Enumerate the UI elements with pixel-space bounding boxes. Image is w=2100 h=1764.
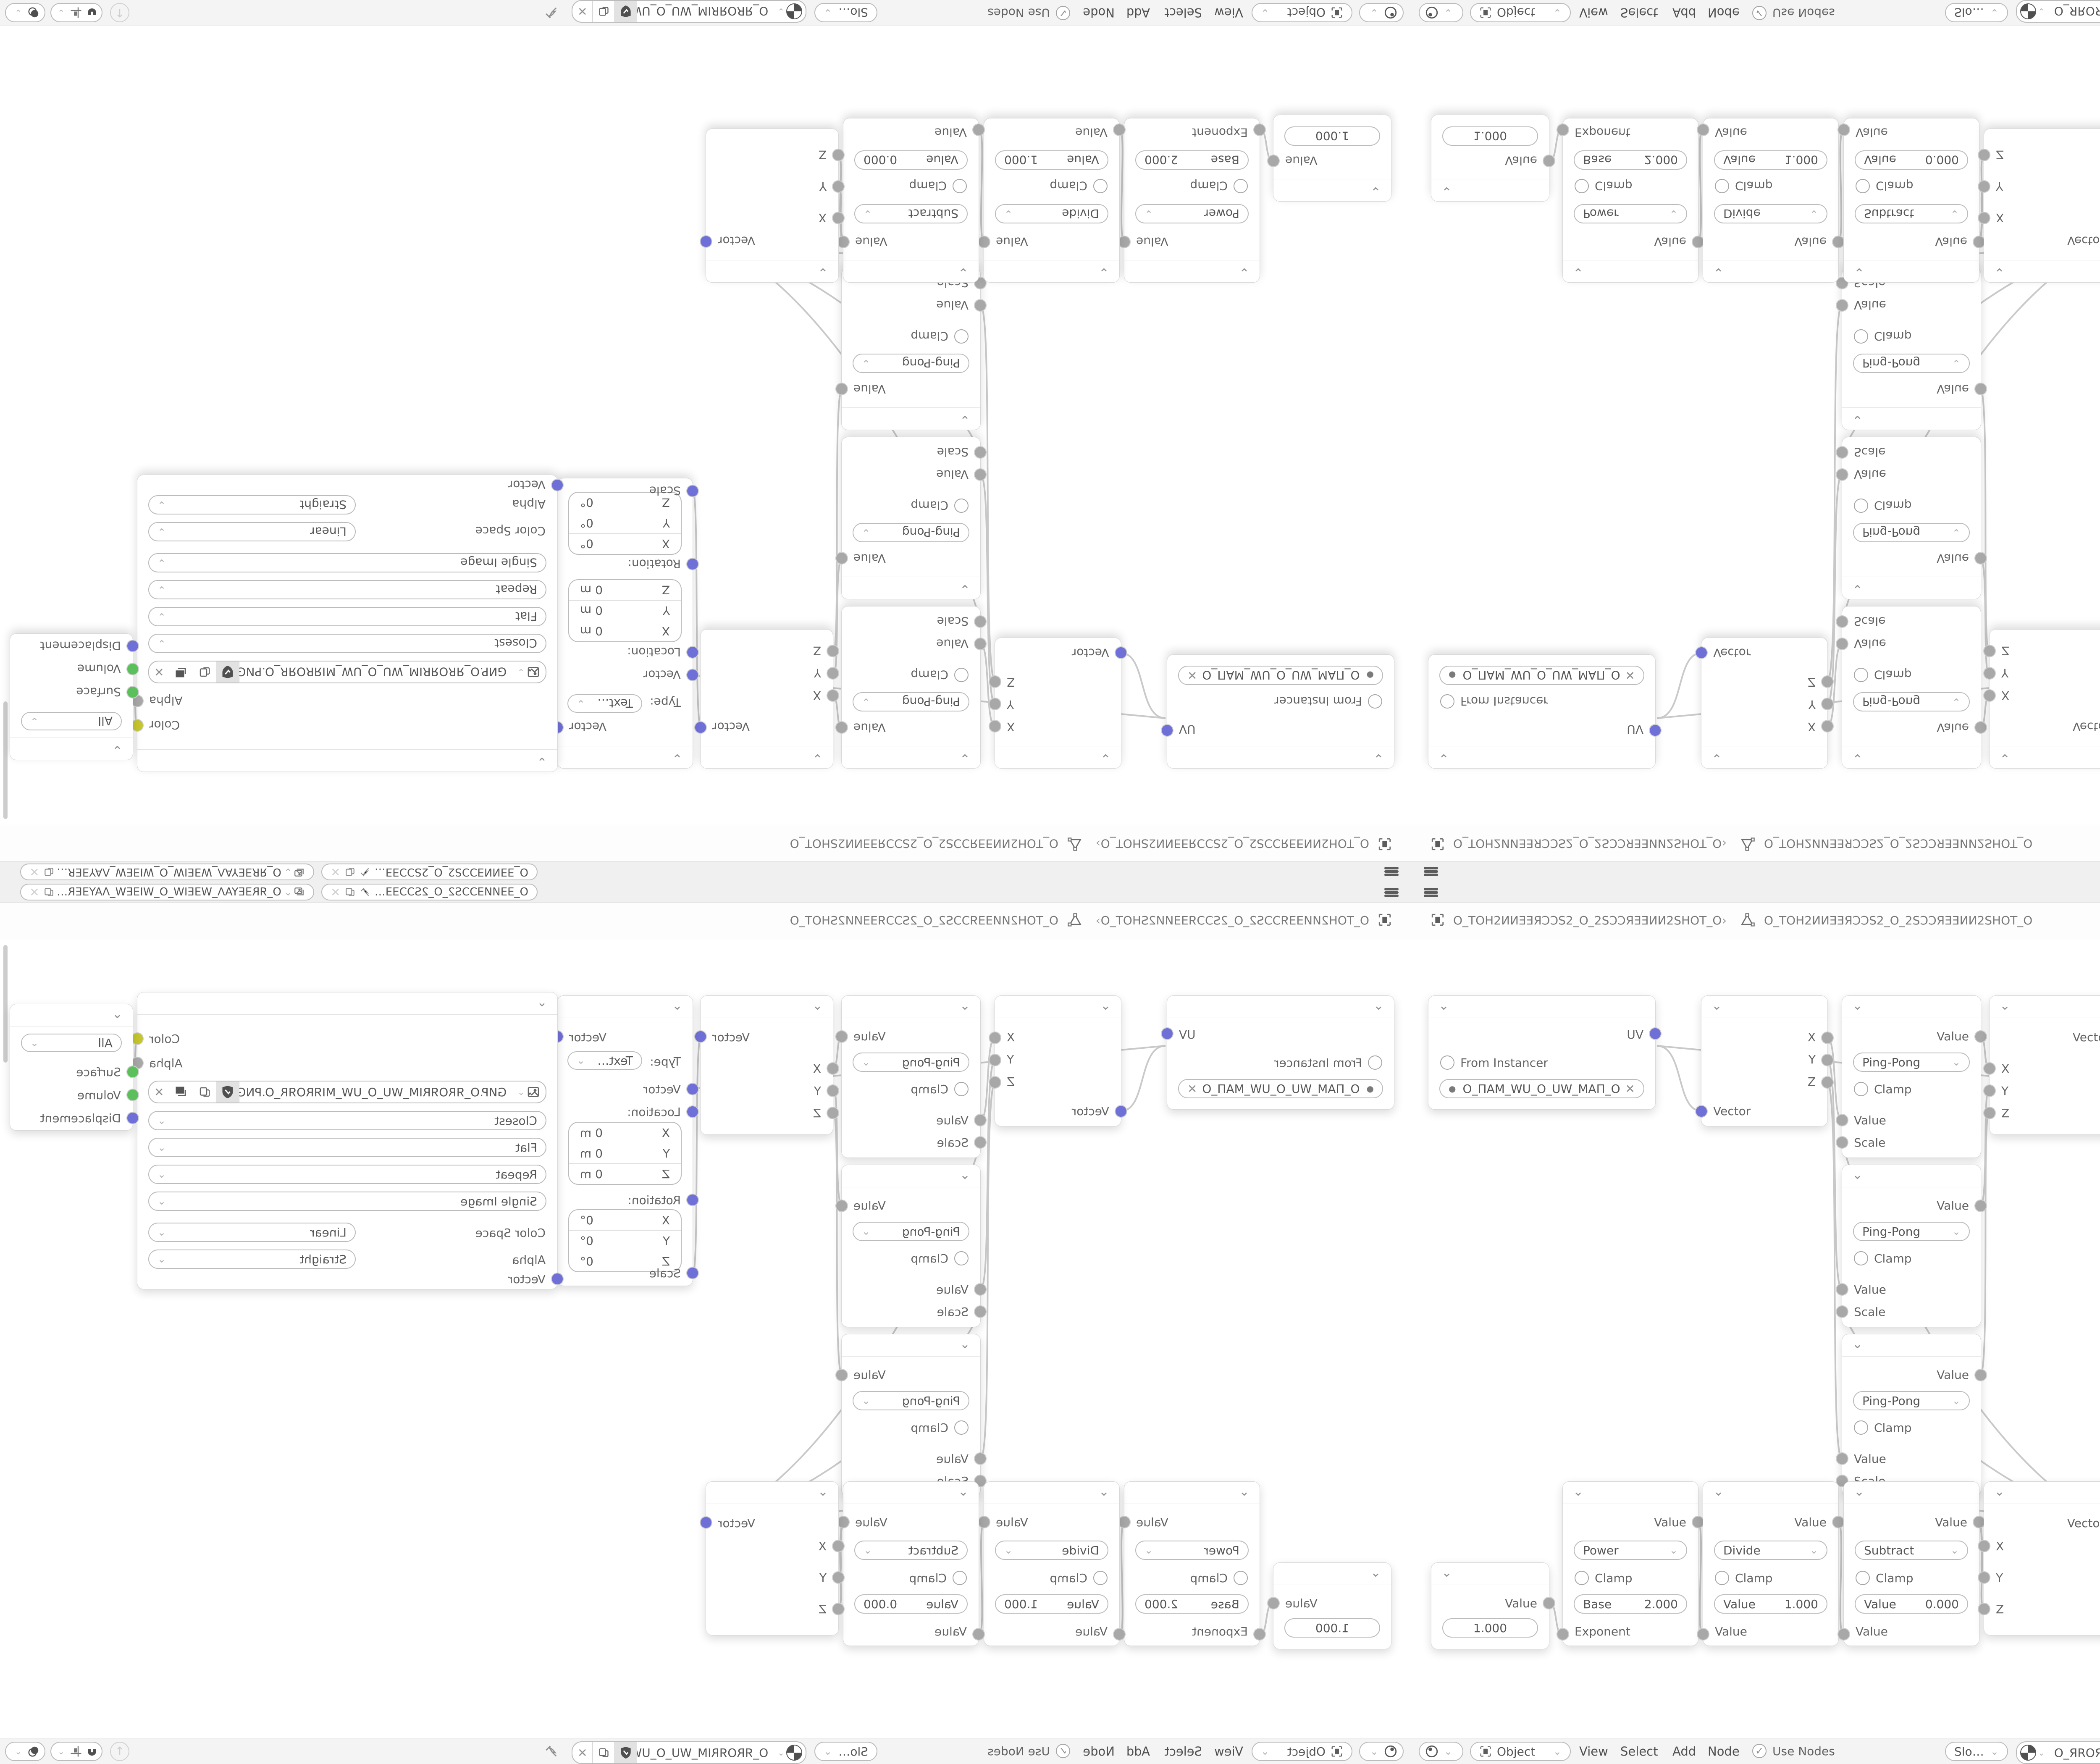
x-output-socket[interactable] <box>990 1032 1000 1043</box>
operation-dropdown[interactable]: Subtract⌄ <box>1855 1541 1968 1560</box>
node-combine-xyz-2[interactable]: ⌄ Vector X Y Z <box>1984 1481 2100 1635</box>
vector-input-socket[interactable] <box>1696 1106 1707 1117</box>
value-input-socket[interactable] <box>1254 1629 1265 1640</box>
value-output-socket[interactable] <box>836 1370 847 1381</box>
x-input-socket[interactable] <box>1979 1541 1990 1551</box>
value-output-socket[interactable] <box>1119 236 1130 247</box>
uv-output-socket[interactable] <box>1650 725 1661 736</box>
clamp-checkbox[interactable]: Clamp <box>1575 1571 1633 1585</box>
clamp-checkbox[interactable]: Clamp <box>911 1082 969 1096</box>
node-combine-xyz[interactable]: ⌄ Vector X Y Z <box>1989 629 2100 769</box>
rotation-fields[interactable]: X0° Y0° Z0° <box>568 492 682 555</box>
node-math-pingpong-1[interactable]: ⌄ Value Ping-Pong⌄ Clamp Value Scale <box>1842 995 1981 1158</box>
breadcrumb-mesh[interactable]: O_TOH2ИИƎƎЯƆƆS2_O_2SƆƆЯƎƎИИ2SHOT_O <box>1764 913 2032 927</box>
collapse-chevron-icon[interactable]: ⌄ <box>1711 998 1722 1013</box>
collapse-chevron-icon[interactable]: ⌄ <box>1852 998 1863 1013</box>
clamp-checkbox[interactable]: Clamp <box>1575 179 1633 193</box>
scene-selector[interactable]: O_ƎƎИИƎƆƆS2_O_2SƆƆƎƎИ... ✕ <box>321 864 538 880</box>
source-dropdown[interactable]: Single Image⌄ <box>148 1192 546 1211</box>
clamp-checkbox[interactable]: Clamp <box>1854 1082 1912 1096</box>
operand-field[interactable]: Base 2.000 <box>1135 1594 1249 1614</box>
y-input-socket[interactable] <box>1984 1085 1995 1096</box>
operation-dropdown[interactable]: Ping-Pong⌄ <box>1853 692 1970 711</box>
scene-selector[interactable]: O_ƎƎИИƎƆƆS2_O_2SƆƆƎƎИ... ✕ <box>321 884 538 900</box>
operand-field[interactable]: Value 1.000 <box>1714 150 1827 170</box>
node-math-pingpong-1[interactable]: ⌄ Value Ping-Pong⌄ Clamp Value Scale <box>841 606 981 769</box>
operation-dropdown[interactable]: Subtract⌄ <box>1855 204 1968 223</box>
node-math-divide[interactable]: ⌄ Value Divide⌄ Clamp Value 1.000 Value <box>1703 118 1839 283</box>
value-output-socket[interactable] <box>979 1517 990 1528</box>
collapse-chevron-icon[interactable]: ⌄ <box>112 743 123 757</box>
y-input-socket[interactable] <box>833 1572 844 1583</box>
value-output-socket[interactable] <box>1975 383 1986 394</box>
clear-icon[interactable]: ✕ <box>1625 1082 1635 1096</box>
operation-dropdown[interactable]: Ping-Pong⌄ <box>1853 1053 1970 1072</box>
node-value[interactable]: ⌄ Value 1.000 <box>1431 1562 1549 1649</box>
material-sphere-icon[interactable]: ⌄ <box>2017 1742 2048 1763</box>
node-combine-xyz[interactable]: ⌄ Vector X Y Z <box>700 629 833 769</box>
value-output-socket[interactable] <box>836 383 847 394</box>
source-dropdown[interactable]: Single Image⌄ <box>148 553 546 572</box>
collapse-chevron-icon[interactable]: ⌄ <box>672 998 682 1013</box>
value-output-socket[interactable] <box>1975 1031 1986 1042</box>
uv-output-socket[interactable] <box>1162 725 1173 736</box>
menu-hamburger-icon[interactable] <box>1424 866 1438 877</box>
close-icon[interactable]: ✕ <box>29 865 39 879</box>
collapse-chevron-icon[interactable]: ⌄ <box>1994 1484 2005 1499</box>
y-input-socket[interactable] <box>833 181 844 192</box>
collapse-chevron-icon[interactable]: ⌄ <box>812 998 823 1013</box>
z-output-socket[interactable] <box>1822 1077 1833 1088</box>
menu-view[interactable]: View <box>1579 5 1608 20</box>
value-output-socket[interactable] <box>838 236 849 247</box>
shading-context-dropdown[interactable]: Object ⌄ <box>1470 1742 1571 1761</box>
collapse-chevron-icon[interactable]: ⌄ <box>1441 1565 1452 1580</box>
menu-add[interactable]: Add <box>1672 5 1696 20</box>
volume-input-socket[interactable] <box>127 664 138 675</box>
clamp-checkbox[interactable]: Clamp <box>1854 1251 1912 1265</box>
menu-hamburger-icon[interactable] <box>1384 887 1399 898</box>
vector-output-socket[interactable] <box>695 1031 706 1042</box>
collapse-chevron-icon[interactable]: ⌄ <box>1099 265 1109 280</box>
menu-view[interactable]: View <box>1214 1744 1243 1759</box>
node-math-power[interactable]: ⌄ Value Power⌄ Clamp Base 2.000 Exponent <box>1562 118 1698 283</box>
operand-field[interactable]: Base 2.000 <box>1574 150 1687 170</box>
surface-input-socket[interactable] <box>127 1066 138 1077</box>
collapse-chevron-icon[interactable]: ⌄ <box>112 1007 123 1021</box>
operation-dropdown[interactable]: Ping-Pong⌄ <box>1853 1391 1970 1410</box>
value-output-socket[interactable] <box>1975 1200 1986 1211</box>
surface-input-socket[interactable] <box>127 687 138 698</box>
shading-context-dropdown[interactable]: Object ⌄ <box>1252 3 1352 22</box>
from-instancer-checkbox[interactable]: From Instancer <box>1274 1055 1382 1070</box>
image-browse-icon[interactable]: ⌄ <box>512 1081 546 1102</box>
value-output-socket[interactable] <box>1268 1598 1279 1609</box>
operation-dropdown[interactable]: Power⌄ <box>1135 204 1249 223</box>
uv-output-socket[interactable] <box>1650 1028 1661 1039</box>
value-output-socket[interactable] <box>979 236 990 247</box>
value-input-socket[interactable] <box>1838 1629 1849 1640</box>
unlink-icon[interactable]: ✕ <box>572 1 593 22</box>
menu-hamburger-icon[interactable] <box>1424 887 1438 898</box>
scale-input-socket[interactable] <box>975 447 986 458</box>
value-output-socket[interactable] <box>836 1031 847 1042</box>
interpolation-dropdown[interactable]: Closest⌄ <box>148 634 546 653</box>
collapse-chevron-icon[interactable]: ⌄ <box>812 751 823 766</box>
collapse-chevron-icon[interactable]: ⌄ <box>1438 998 1449 1013</box>
clamp-checkbox[interactable]: Clamp <box>911 499 969 513</box>
z-input-socket[interactable] <box>827 1108 838 1118</box>
value-input-socket[interactable] <box>1837 469 1848 480</box>
vector-input-socket[interactable] <box>687 669 698 680</box>
node-separate-xyz[interactable]: ⌄ X Y Z Vector <box>1701 638 1828 769</box>
operation-dropdown[interactable]: Ping-Pong⌄ <box>853 1222 969 1241</box>
operand-field[interactable]: Value 1.000 <box>1714 1594 1827 1614</box>
operand-field[interactable]: Value 0.000 <box>1855 150 1968 170</box>
pin-icon[interactable] <box>360 866 370 877</box>
node-math-divide[interactable]: ⌄ Value Divide⌄ Clamp Value 1.000 Value <box>1703 1481 1839 1646</box>
material-sphere-icon[interactable]: ⌄ <box>774 1742 806 1763</box>
x-input-socket[interactable] <box>1979 213 1990 223</box>
collapse-chevron-icon[interactable]: ⌄ <box>818 1484 828 1499</box>
clamp-checkbox[interactable]: Clamp <box>1715 179 1773 193</box>
value-output-socket[interactable] <box>1693 236 1704 247</box>
vector-input-socket[interactable] <box>1116 1106 1126 1117</box>
value-output-socket[interactable] <box>1833 236 1844 247</box>
clear-icon[interactable]: ✕ <box>1187 1082 1197 1096</box>
copy-icon[interactable] <box>193 661 216 682</box>
viewlayer-selector[interactable]: ⌄ O_ЯRƎEYAΛ_WƎEIW_O_WIƎEW_ΛAYƎERЯ_O ✕ <box>20 884 314 900</box>
value-output-socket[interactable] <box>1975 1370 1986 1381</box>
clamp-checkbox[interactable]: Clamp <box>1854 329 1912 344</box>
node-math-divide[interactable]: ⌄ Value Divide⌄ Clamp Value 1.000 Value <box>984 1481 1120 1646</box>
location-fields[interactable]: X0 m Y0 m Z0 m <box>568 579 682 642</box>
collapse-chevron-icon[interactable]: ⌄ <box>1852 1337 1863 1352</box>
node-mapping[interactable]: ⌄ Vector Type: Texture⌄ Vector Location:… <box>557 995 693 1286</box>
value-output-socket[interactable] <box>836 722 847 733</box>
color-space-dropdown[interactable]: Linear⌄ <box>148 1223 356 1242</box>
breadcrumb-mesh[interactable]: O_TOH2ИИƎƎЯƆƆS2_O_2SƆƆЯƎƎИИ2SHOT_O <box>1764 837 2032 850</box>
rotation-fields[interactable]: X0° Y0° Z0° <box>568 1209 682 1272</box>
node-material-output[interactable]: ⌄ All⌄ Surface Volume Displacement <box>10 1004 133 1131</box>
collapse-chevron-icon[interactable]: ⌄ <box>1711 751 1722 766</box>
editor-type-button[interactable]: ⌄ <box>1419 3 1463 22</box>
scale-input-socket[interactable] <box>1837 1306 1848 1317</box>
value-output-socket[interactable] <box>1268 155 1279 166</box>
y-output-socket[interactable] <box>1822 1055 1833 1066</box>
value-input-socket[interactable] <box>975 638 986 649</box>
editor-type-button[interactable]: ⌄ <box>1359 3 1404 22</box>
scale-input-socket[interactable] <box>975 1306 986 1317</box>
clamp-checkbox[interactable]: Clamp <box>1190 1571 1248 1585</box>
collapse-chevron-icon[interactable]: ⌄ <box>1852 412 1863 427</box>
value-output-socket[interactable] <box>1833 1517 1844 1528</box>
viewlayer-selector[interactable]: ⌄ O_ЯRƎEYAΛ_WƎEIW_O_WIƎEW_ΛAYƎERЯ_O ✕ <box>20 864 314 880</box>
value-output-socket[interactable] <box>1543 1598 1554 1609</box>
node-uv-map[interactable]: ⌄ UV From Instancer ● O_ПAM_WU_O_UW_MAП_… <box>1428 995 1656 1110</box>
menu-hamburger-icon[interactable] <box>1384 866 1399 877</box>
use-nodes-checkbox[interactable]: ✓Use Nodes <box>1752 1744 1835 1758</box>
value-input-socket[interactable] <box>1837 1284 1848 1295</box>
collapse-chevron-icon[interactable]: ⌄ <box>1713 1484 1724 1499</box>
node-math-subtract[interactable]: ⌄ Value Subtract⌄ Clamp Value 0.000 Valu… <box>843 118 979 283</box>
node-math-power[interactable]: ⌄ Value Power⌄ Clamp Base 2.000 Exponent <box>1124 1481 1260 1646</box>
node-uv-map[interactable]: ⌄ UV From Instancer ● O_ПAM_WU_O_UW_MAП_… <box>1167 654 1394 769</box>
value-input-socket[interactable] <box>1837 1115 1848 1126</box>
menu-view[interactable]: View <box>1214 5 1243 20</box>
node-separate-xyz[interactable]: ⌄ X Y Z Vector <box>995 638 1121 769</box>
clamp-checkbox[interactable]: Clamp <box>1050 179 1108 193</box>
y-input-socket[interactable] <box>1979 1572 1990 1583</box>
value-output-socket[interactable] <box>1975 722 1986 733</box>
gpu-compile-button[interactable]: ↑ <box>110 3 129 22</box>
y-input-socket[interactable] <box>1984 668 1995 679</box>
value-output-socket[interactable] <box>1119 1517 1130 1528</box>
menu-node[interactable]: Node <box>1083 1744 1115 1759</box>
value-input-socket[interactable] <box>975 1453 986 1464</box>
node-uv-map[interactable]: ⌄ UV From Instancer ● O_ПAM_WU_O_UW_MAП_… <box>1428 654 1656 769</box>
z-input-socket[interactable] <box>833 1604 844 1614</box>
value-output-socket[interactable] <box>1974 1517 1984 1528</box>
target-dropdown[interactable]: All⌄ <box>21 712 122 730</box>
scale-input-socket[interactable] <box>1837 616 1848 627</box>
operation-dropdown[interactable]: Divide⌄ <box>1714 204 1827 223</box>
node-separate-xyz[interactable]: ⌄ X Y Z Vector <box>1701 995 1828 1126</box>
node-value[interactable]: ⌄ Value 1.000 <box>1273 115 1391 202</box>
node-math-pingpong-1[interactable]: ⌄ Value Ping-Pong⌄ Clamp Value Scale <box>841 995 981 1158</box>
operation-dropdown[interactable]: Power⌄ <box>1574 204 1687 223</box>
node-math-pingpong-3[interactable]: ⌄ Value Ping-Pong⌄ Clamp Value Scale <box>841 268 981 430</box>
clamp-checkbox[interactable]: Clamp <box>1856 1571 1914 1585</box>
collapse-chevron-icon[interactable]: ⌄ <box>1438 751 1449 766</box>
node-image-texture[interactable]: ⌄ Color Alpha ⌄ GИP.O_ЯROЯRIM_WU_O_UW_MI… <box>137 475 558 772</box>
collapse-chevron-icon[interactable]: ⌄ <box>1441 184 1452 199</box>
fake-user-shield-icon[interactable] <box>216 661 239 682</box>
use-nodes-checkbox[interactable]: ✓Use Nodes <box>1752 6 1835 20</box>
x-output-socket[interactable] <box>1822 721 1833 732</box>
value-output-socket[interactable] <box>836 1200 847 1211</box>
operation-dropdown[interactable]: Ping-Pong⌄ <box>1853 354 1970 373</box>
clamp-checkbox[interactable]: Clamp <box>1190 179 1248 193</box>
z-input-socket[interactable] <box>1984 646 1995 656</box>
operation-dropdown[interactable]: Ping-Pong⌄ <box>853 1391 969 1410</box>
color-space-dropdown[interactable]: Linear⌄ <box>148 522 356 541</box>
collapse-chevron-icon[interactable]: ⌄ <box>1854 265 1864 280</box>
clamp-checkbox[interactable]: Clamp <box>1715 1571 1773 1585</box>
operation-dropdown[interactable]: Power⌄ <box>1574 1541 1687 1560</box>
menu-select[interactable]: Select <box>1620 5 1658 20</box>
images-stack-icon[interactable] <box>169 1081 193 1102</box>
value-input-socket[interactable] <box>1837 1453 1848 1464</box>
node-math-divide[interactable]: ⌄ Value Divide⌄ Clamp Value 1.000 Value <box>984 118 1120 283</box>
operation-dropdown[interactable]: Ping-Pong⌄ <box>853 354 969 373</box>
close-icon[interactable]: ✕ <box>331 885 340 899</box>
x-output-socket[interactable] <box>1822 1032 1833 1043</box>
value-input-socket[interactable] <box>1254 124 1265 135</box>
location-input-socket[interactable] <box>687 1106 698 1117</box>
y-output-socket[interactable] <box>990 698 1000 709</box>
operation-dropdown[interactable]: Ping-Pong⌄ <box>853 523 969 542</box>
operation-dropdown[interactable]: Ping-Pong⌄ <box>853 692 969 711</box>
node-math-power[interactable]: ⌄ Value Power⌄ Clamp Base 2.000 Exponent <box>1124 118 1260 283</box>
clamp-checkbox[interactable]: Clamp <box>1854 499 1912 513</box>
x-output-socket[interactable] <box>990 721 1000 732</box>
image-browse-icon[interactable]: ⌄ <box>512 661 546 682</box>
node-mapping[interactable]: ⌄ Vector Type: Texture⌄ Vector Location:… <box>557 478 693 769</box>
slot-dropdown[interactable]: Slot 1⌄ <box>814 3 877 22</box>
value-input-socket[interactable] <box>975 1115 986 1126</box>
images-stack-icon[interactable] <box>169 661 193 682</box>
node-math-pingpong-3[interactable]: ⌄ Value Ping-Pong⌄ Clamp Value Scale <box>1842 268 1981 430</box>
scale-input-socket[interactable] <box>1837 1137 1848 1148</box>
z-input-socket[interactable] <box>827 646 838 656</box>
node-math-pingpong-2[interactable]: ⌄ Value Ping-Pong⌄ Clamp Value Scale <box>841 437 981 599</box>
uv-map-selector[interactable]: ● O_ПAM_WU_O_UW_MAП_O ✕ <box>1178 666 1383 685</box>
clamp-checkbox[interactable]: Clamp <box>911 329 969 344</box>
value-input-socket[interactable] <box>1557 1629 1568 1640</box>
value-output-socket[interactable] <box>1974 236 1984 247</box>
collapse-chevron-icon[interactable]: ⌄ <box>1852 751 1863 766</box>
node-math-pingpong-3[interactable]: ⌄ Value Ping-Pong⌄ Clamp Value Scale <box>1842 1334 1981 1496</box>
z-input-socket[interactable] <box>1979 150 1990 160</box>
fake-user-shield-icon[interactable] <box>615 1 637 22</box>
y-input-socket[interactable] <box>1979 181 1990 192</box>
collapse-chevron-icon[interactable]: ⌄ <box>1239 265 1249 280</box>
z-output-socket[interactable] <box>1822 676 1833 687</box>
collapse-chevron-icon[interactable]: ⌄ <box>960 998 970 1013</box>
mapping-type-dropdown[interactable]: Texture⌄ <box>567 1051 642 1070</box>
node-combine-xyz-2[interactable]: ⌄ Vector X Y Z <box>706 1481 839 1635</box>
volume-input-socket[interactable] <box>127 1089 138 1100</box>
operand-field[interactable]: Value 1.000 <box>995 1594 1108 1614</box>
collapse-chevron-icon[interactable]: ⌄ <box>1713 265 1724 280</box>
scale-input-socket[interactable] <box>1837 447 1848 458</box>
operand-field[interactable]: Value 1.000 <box>995 150 1108 170</box>
use-nodes-checkbox[interactable]: ✓Use Nodes <box>987 1744 1070 1758</box>
menu-select[interactable]: Select <box>1620 1744 1658 1759</box>
collapse-chevron-icon[interactable]: ⌄ <box>958 1484 969 1499</box>
y-output-socket[interactable] <box>1822 698 1833 709</box>
breadcrumb-object[interactable]: O_TOH2ИИƎƎЯƆƆS2_O_2SƆƆЯƎƎИИ2SHOT_O <box>1101 913 1369 927</box>
value-input-socket[interactable] <box>975 469 986 480</box>
value-field[interactable]: 1.000 <box>1442 126 1538 146</box>
collapse-chevron-icon[interactable]: ⌄ <box>537 995 547 1010</box>
menu-node[interactable]: Node <box>1083 5 1115 20</box>
slot-dropdown[interactable]: Slot 1⌄ <box>1945 1742 2008 1761</box>
projection-dropdown[interactable]: Flat⌄ <box>148 607 546 626</box>
collapse-chevron-icon[interactable]: ⌄ <box>1573 265 1583 280</box>
from-instancer-checkbox[interactable]: From Instancer <box>1440 1055 1548 1070</box>
uv-map-selector[interactable]: ● O_ПAM_WU_O_UW_MAП_O ✕ <box>1439 666 1644 685</box>
value-field[interactable]: 1.000 <box>1284 126 1380 146</box>
clamp-checkbox[interactable]: Clamp <box>911 668 969 682</box>
uv-map-selector[interactable]: ● O_ПAM_WU_O_UW_MAП_O ✕ <box>1439 1079 1644 1098</box>
node-math-pingpong-2[interactable]: ⌄ Value Ping-Pong⌄ Clamp Value Scale <box>841 1165 981 1327</box>
fake-user-shield-icon[interactable] <box>615 1742 637 1763</box>
breadcrumb-object[interactable]: O_TOH2ИИƎƎЯƆƆS2_O_2SƆƆЯƎƎИИ2SHOT_O <box>1101 837 1369 850</box>
vector-output-socket[interactable] <box>701 236 711 247</box>
uv-map-selector[interactable]: ● O_ПAM_WU_O_UW_MAП_O ✕ <box>1178 1079 1383 1098</box>
z-output-socket[interactable] <box>990 676 1000 687</box>
extension-dropdown[interactable]: Repeat⌄ <box>148 1165 546 1184</box>
material-sphere-icon[interactable]: ⌄ <box>2017 1 2048 22</box>
clamp-checkbox[interactable]: Clamp <box>1854 1420 1912 1435</box>
node-combine-xyz-2[interactable]: ⌄ Vector X Y Z <box>1984 129 2100 283</box>
value-output-socket[interactable] <box>836 553 847 564</box>
image-datablock[interactable]: ⌄ GИP.O_ЯROЯRIM_WU_O_UW_MIЯROЯR_O.PNG ✕ <box>148 661 546 683</box>
collapse-chevron-icon[interactable]: ⌄ <box>537 754 547 769</box>
color-output-socket[interactable] <box>132 720 143 731</box>
breadcrumb-mesh[interactable]: O_TOH2ИИƎƎЯƆƆS2_O_2SƆƆЯƎƎИИ2SHOT_O <box>790 837 1058 850</box>
slot-dropdown[interactable]: Slot 1⌄ <box>814 1742 877 1761</box>
vector-input-socket[interactable] <box>687 1084 698 1095</box>
collapse-chevron-icon[interactable]: ⌄ <box>2000 751 2010 766</box>
from-instancer-checkbox[interactable]: From Instancer <box>1440 694 1548 709</box>
clamp-checkbox[interactable]: Clamp <box>1854 668 1912 682</box>
projection-dropdown[interactable]: Flat⌄ <box>148 1138 546 1157</box>
operation-dropdown[interactable]: Subtract⌄ <box>854 204 968 223</box>
collapse-chevron-icon[interactable]: ⌄ <box>1100 751 1111 766</box>
collapse-chevron-icon[interactable]: ⌄ <box>960 412 970 427</box>
menu-view[interactable]: View <box>1579 1744 1608 1759</box>
clamp-checkbox[interactable]: Clamp <box>911 1420 969 1435</box>
target-dropdown[interactable]: All⌄ <box>21 1034 122 1052</box>
alpha-dropdown[interactable]: Straight⌄ <box>148 495 356 514</box>
material-datablock[interactable]: ⌄ O_ЯROЯRIM_WU_O_UW_MIЯROЯR_O ✕ <box>572 1741 806 1764</box>
close-icon[interactable]: ✕ <box>29 885 39 899</box>
collapse-chevron-icon[interactable]: ⌄ <box>1854 1484 1864 1499</box>
clamp-checkbox[interactable]: Clamp <box>1050 1571 1108 1585</box>
editor-type-button[interactable]: ⌄ <box>1419 1742 1463 1761</box>
unlink-icon[interactable]: ✕ <box>572 1742 593 1763</box>
menu-add[interactable]: Add <box>1672 1744 1696 1759</box>
editor-scrollbar[interactable] <box>3 945 8 1063</box>
material-datablock[interactable]: ⌄ O_ЯROЯRIM_WU_O_UW_MIЯROЯR_O ✕ <box>2016 0 2100 23</box>
displacement-input-socket[interactable] <box>127 1113 138 1123</box>
shading-context-dropdown[interactable]: Object ⌄ <box>1252 1742 1352 1761</box>
vector-input-socket[interactable] <box>1696 647 1707 658</box>
z-output-socket[interactable] <box>990 1077 1000 1088</box>
value-input-socket[interactable] <box>1114 124 1125 135</box>
pin-icon[interactable] <box>544 1744 559 1759</box>
z-input-socket[interactable] <box>1984 1108 1995 1118</box>
material-datablock[interactable]: ⌄ O_ЯROЯRIM_WU_O_UW_MIЯROЯR_O ✕ <box>572 0 806 23</box>
collapse-chevron-icon[interactable]: ⌄ <box>1852 582 1863 596</box>
operation-dropdown[interactable]: Ping-Pong⌄ <box>1853 523 1970 542</box>
interpolation-dropdown[interactable]: Closest⌄ <box>148 1111 546 1130</box>
breadcrumb-object[interactable]: O_TOH2ИИƎƎЯƆƆS2_O_2SƆƆЯƎƎИИ2SHOT_O <box>1453 837 1722 850</box>
operation-dropdown[interactable]: Divide⌄ <box>1714 1541 1827 1560</box>
pin-icon[interactable] <box>544 5 559 20</box>
copy-icon[interactable] <box>344 887 355 898</box>
value-input-socket[interactable] <box>1837 300 1848 311</box>
slot-dropdown[interactable]: Slot 1⌄ <box>1945 3 2008 22</box>
image-datablock[interactable]: ⌄ GИP.O_ЯROЯRIM_WU_O_UW_MIЯROЯR_O.PNG ✕ <box>148 1081 546 1103</box>
node-math-subtract[interactable]: ⌄ Value Subtract⌄ Clamp Value 0.000 Valu… <box>843 1481 979 1646</box>
clamp-checkbox[interactable]: Clamp <box>1856 179 1914 193</box>
collapse-chevron-icon[interactable]: ⌄ <box>1373 751 1384 766</box>
node-math-subtract[interactable]: ⌄ Value Subtract⌄ Clamp Value 0.000 Valu… <box>1843 1481 1979 1646</box>
value-input-socket[interactable] <box>1698 1629 1709 1640</box>
shading-context-dropdown[interactable]: Object ⌄ <box>1470 3 1571 22</box>
material-datablock[interactable]: ⌄ O_ЯROЯRIM_WU_O_UW_MIЯROЯR_O ✕ <box>2016 1741 2100 1764</box>
operation-dropdown[interactable]: Divide⌄ <box>995 204 1108 223</box>
node-math-pingpong-3[interactable]: ⌄ Value Ping-Pong⌄ Clamp Value Scale <box>841 1334 981 1496</box>
y-input-socket[interactable] <box>827 1085 838 1096</box>
node-math-power[interactable]: ⌄ Value Power⌄ Clamp Base 2.000 Exponent <box>1562 1481 1698 1646</box>
x-input-socket[interactable] <box>833 1541 844 1551</box>
close-icon[interactable]: ✕ <box>331 865 340 879</box>
